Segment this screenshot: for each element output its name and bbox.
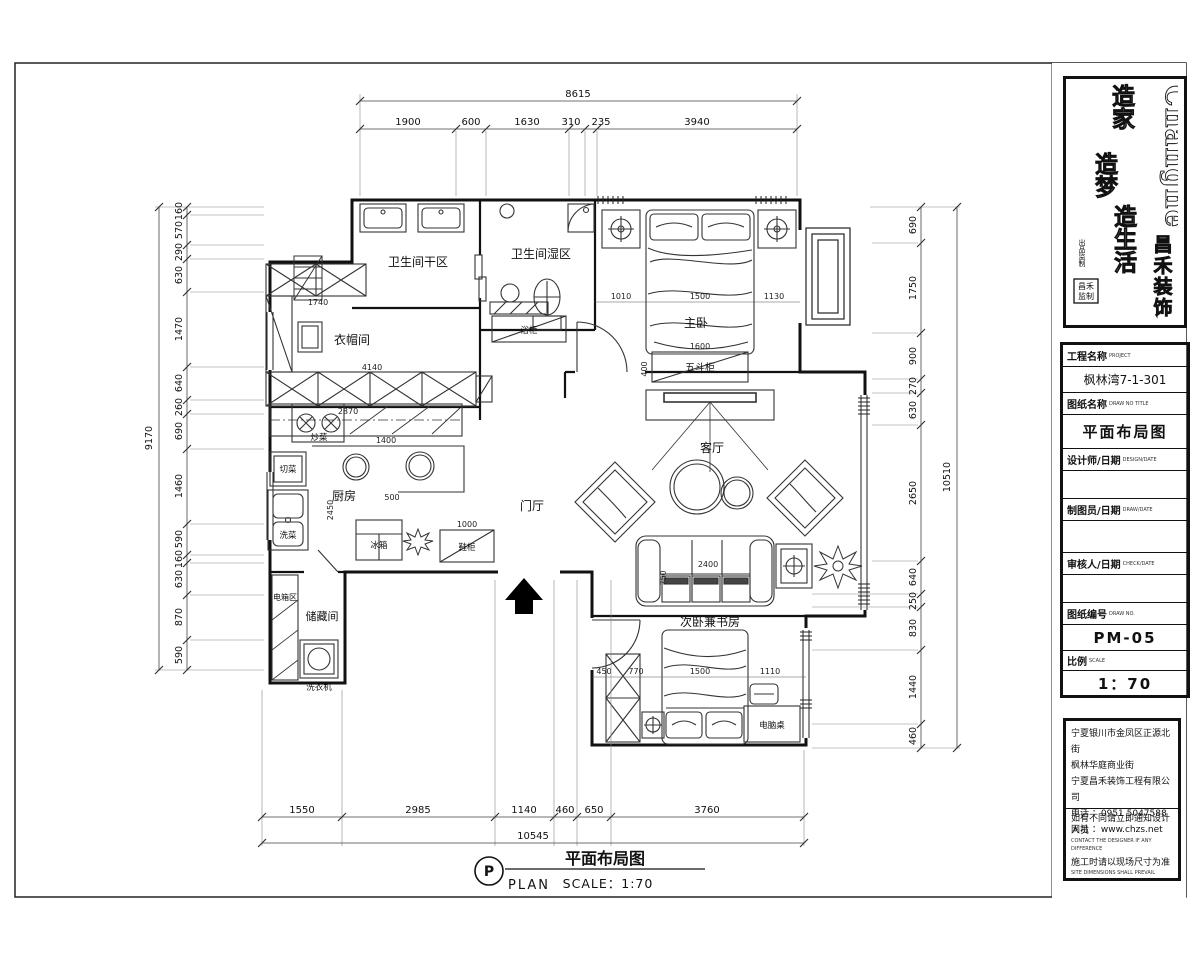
drawing-label-en: DRAW NO TITLE	[1109, 401, 1149, 407]
notice-2: 施工时请以现场尺寸为准	[1071, 857, 1173, 869]
dim-bottom-4: 650	[584, 805, 603, 816]
dim-chest-d: 400	[640, 361, 649, 376]
company-box: 宁夏银川市金凤区正源北街 枫林华庭商业街 宁夏昌禾装饰工程有限公司 电话 ：09…	[1063, 718, 1181, 881]
dim-mbed-w: 1500	[690, 292, 710, 301]
dim-bottom-0: 1550	[289, 805, 314, 816]
checker-label-row: 审核人/日期 CHECK/DATE	[1063, 553, 1187, 575]
scale-label-row: 比例 SCALE	[1063, 651, 1187, 671]
designer-label-row: 设计师/日期 DESIGN/DATE	[1063, 449, 1187, 471]
drawing-label-row: 图纸名称 DRAW NO TITLE	[1063, 393, 1187, 415]
dim-top-0: 1900	[395, 117, 420, 128]
scale-value: 1：70	[1063, 671, 1187, 695]
checker-value-blank	[1063, 575, 1187, 603]
dim-bottom-5: 3760	[694, 805, 719, 816]
label-desk: 电脑桌	[759, 720, 785, 731]
project-label-en: PROJECT	[1109, 353, 1131, 359]
dim-left-6: 260	[174, 398, 185, 416]
room-label-living: 客厅	[700, 440, 724, 455]
drawing-label: 图纸名称	[1067, 396, 1107, 411]
dim-left-9: 590	[174, 530, 185, 548]
company-address-1: 宁夏银川市金凤区正源北街	[1071, 726, 1173, 758]
logo-slogan-2: 造梦	[1091, 152, 1119, 199]
room-label-bath-wet: 卫生间湿区	[511, 246, 571, 261]
dim-left-13: 590	[174, 646, 185, 664]
label-bathcab: 浴柜	[520, 325, 538, 336]
scale-label: 比例	[1067, 653, 1087, 668]
dim-bottom-total: 10545	[517, 831, 549, 842]
caption-plan-en: PLAN	[508, 878, 550, 893]
logo-slogan-3: 造生活	[1110, 205, 1138, 274]
dim-chain-top: 8615 1900 600 1630 310 235 3940	[356, 89, 801, 196]
logo-brand-cn-2: 禾	[1153, 255, 1172, 277]
room-label-foyer: 门厅	[520, 498, 544, 513]
room-label-cloak: 衣帽间	[334, 332, 370, 347]
logo-side-note: 出品监制	[1078, 238, 1086, 268]
room-label-second: 次卧兼书房	[680, 614, 740, 629]
dim-bed2-a: 450	[596, 667, 611, 676]
dim-sofa-d: 750	[659, 570, 668, 585]
dim-top-5: 3940	[684, 117, 709, 128]
dim-right-4: 630	[908, 401, 919, 419]
company-name: 宁夏昌禾装饰工程有限公司	[1071, 774, 1173, 806]
logo-brand-cn-1: 昌	[1153, 234, 1172, 256]
dim-left-7: 690	[174, 422, 185, 440]
company-address-2: 枫林华庭商业街	[1071, 758, 1173, 774]
dim-bed2-b: 770	[628, 667, 643, 676]
dim-top-4: 235	[591, 117, 610, 128]
dim-right-0: 690	[908, 216, 919, 234]
storage-fixtures	[272, 575, 338, 680]
entry-arrow	[505, 578, 543, 614]
dim-cloak-top: 1740	[308, 298, 328, 307]
logo-slogan-1: 造家	[1108, 84, 1136, 130]
dim-left-10: 160	[174, 550, 185, 568]
room-label-storage: 储藏间	[306, 609, 339, 623]
logo-seal-2: 监制	[1078, 291, 1094, 301]
dim-right-1: 1750	[908, 276, 919, 300]
room-label-kitchen: 厨房	[332, 488, 356, 503]
dim-kitchen-island: 500	[384, 493, 399, 502]
dim-right-8: 830	[908, 619, 919, 637]
drafter-label: 制图员/日期	[1067, 502, 1121, 517]
dim-left-4: 1470	[174, 317, 185, 341]
number-label-en: DRAW NO.	[1109, 611, 1135, 617]
dim-right-total: 10510	[942, 462, 953, 492]
number-label-row: 图纸编号 DRAW NO.	[1063, 603, 1187, 625]
dim-mbed-right: 1130	[764, 292, 784, 301]
label-washer: 洗衣机	[306, 682, 332, 693]
title-info-table: 工程名称 PROJECT 枫林湾7-1-301 图纸名称 DRAW NO TIT…	[1060, 342, 1190, 698]
checker-label-en: CHECK/DATE	[1123, 561, 1155, 567]
project-label-row: 工程名称 PROJECT	[1063, 345, 1187, 367]
dim-left-5: 640	[174, 374, 185, 392]
walls	[270, 200, 865, 745]
dim-bed2-c: 1500	[690, 667, 710, 676]
bay-window	[806, 228, 850, 325]
room-label-elec: 电箱区	[273, 592, 297, 602]
dim-bed2-d: 1110	[760, 667, 780, 676]
number-label: 图纸编号	[1067, 606, 1107, 621]
plan-caption: P PLAN 平面布局图 SCALE：1:70	[475, 849, 705, 893]
dim-left-1: 570	[174, 221, 185, 239]
project-label: 工程名称	[1067, 348, 1107, 363]
checker-label: 审核人/日期	[1067, 556, 1121, 571]
label-wash: 洗菜	[279, 530, 297, 541]
windows	[267, 196, 870, 738]
dim-mbed-left: 1010	[611, 292, 631, 301]
dim-right-5: 2650	[908, 481, 919, 505]
dim-top-total: 8615	[565, 89, 590, 100]
logo-brand-en: Changhe	[1159, 85, 1178, 227]
dim-right-10: 460	[908, 727, 919, 745]
number-value: PM-05	[1063, 625, 1187, 651]
designer-value-blank	[1063, 471, 1187, 499]
dim-top-2: 1630	[514, 117, 539, 128]
dim-cloak-bottom: 4140	[362, 363, 382, 372]
room-label-master: 主卧	[684, 316, 708, 330]
logo-box: Changhe 昌 禾 装 饰 造家 造梦 造生活 出品监制 昌禾 监制	[1063, 76, 1187, 328]
label-shoe: 鞋柜	[458, 542, 476, 553]
logo-brand-cn-4: 饰	[1153, 296, 1172, 319]
title-block-column: Changhe 昌 禾 装 饰 造家 造梦 造生活 出品监制 昌禾 监制 工程名…	[1052, 63, 1186, 898]
scale-label-en: SCALE	[1089, 658, 1105, 664]
drawing-value: 平面布局图	[1063, 415, 1187, 449]
dim-top-3: 310	[561, 117, 580, 128]
dim-kitchen-h: 2450	[326, 500, 335, 520]
caption-title: 平面布局图	[565, 849, 645, 868]
label-cut: 切菜	[279, 464, 297, 475]
company-notices: 如有不同请立即通知设计人员 CONTACT THE DESIGNER IF AN…	[1066, 809, 1178, 885]
wall-openings	[264, 230, 871, 738]
label-cook: 炒菜	[310, 432, 328, 443]
drafter-value-blank	[1063, 521, 1187, 553]
caption-tag: P	[484, 864, 494, 880]
dim-left-3: 630	[174, 266, 185, 284]
dim-bottom-2: 1140	[511, 805, 536, 816]
dim-bottom-1: 2985	[405, 805, 430, 816]
dim-left-0: 160	[174, 202, 185, 220]
floor-plan-svg: 卫生间干区 卫生间湿区 主卧 衣帽间 厨房 门厅 客厅 储藏间 电箱区 次卧兼书…	[0, 0, 1200, 960]
bath-fixtures	[360, 204, 594, 342]
dim-sofa-w: 2400	[698, 560, 718, 569]
designer-label-en: DESIGN/DATE	[1123, 457, 1157, 463]
cloak-wardrobes	[266, 264, 492, 406]
dim-right-3: 270	[908, 377, 919, 395]
designer-label: 设计师/日期	[1067, 452, 1121, 467]
label-fridge: 冰箱	[370, 540, 388, 551]
dim-right-7: 250	[908, 592, 919, 610]
dim-chain-right: 10510 690 1750 900 270 630 2650 640 250 …	[812, 203, 961, 752]
dim-chest-w: 1600	[690, 342, 710, 351]
dim-left-12: 870	[174, 608, 185, 626]
dim-kitchen-w: 1400	[376, 436, 396, 445]
company-address: 宁夏银川市金凤区正源北街 枫林华庭商业街 宁夏昌禾装饰工程有限公司 电话 ：09…	[1066, 721, 1178, 809]
notice-1-en: CONTACT THE DESIGNER IF ANY DIFFERENCE	[1071, 837, 1173, 853]
dim-right-9: 1440	[908, 675, 919, 699]
dim-bottom-3: 460	[555, 805, 574, 816]
sheet-border	[15, 63, 1186, 897]
dim-cloak-depth: 2870	[338, 407, 358, 416]
caption-scale: SCALE：1:70	[563, 876, 654, 891]
logo-brand-cn-3: 装	[1152, 275, 1172, 298]
dim-left-8: 1460	[174, 474, 185, 498]
label-chest: 五斗柜	[685, 361, 715, 374]
dim-right-2: 900	[908, 347, 919, 365]
dim-shoe-w: 1000	[457, 520, 477, 529]
drawing-sheet: 卫生间干区 卫生间湿区 主卧 衣帽间 厨房 门厅 客厅 储藏间 电箱区 次卧兼书…	[0, 0, 1200, 960]
dim-chain-left: 9170 160 570 290 630 1470 640 260 690 14…	[144, 202, 264, 674]
drafter-label-en: DRAW/DATE	[1123, 507, 1153, 513]
project-value: 枫林湾7-1-301	[1063, 367, 1187, 393]
kitchen-fixtures	[268, 404, 464, 550]
dim-right-6: 640	[908, 568, 919, 586]
dim-left-11: 630	[174, 570, 185, 588]
living-furniture	[575, 390, 843, 606]
room-label-bath-dry: 卫生间干区	[388, 255, 448, 269]
dim-left-2: 290	[174, 243, 185, 261]
notice-2-en: SITE DIMENSIONS SHALL PREVAIL	[1071, 869, 1173, 877]
dim-left-total: 9170	[144, 426, 155, 450]
drafter-label-row: 制图员/日期 DRAW/DATE	[1063, 499, 1187, 521]
dim-top-1: 600	[461, 117, 480, 128]
logo-seal-1: 昌禾	[1078, 282, 1094, 291]
